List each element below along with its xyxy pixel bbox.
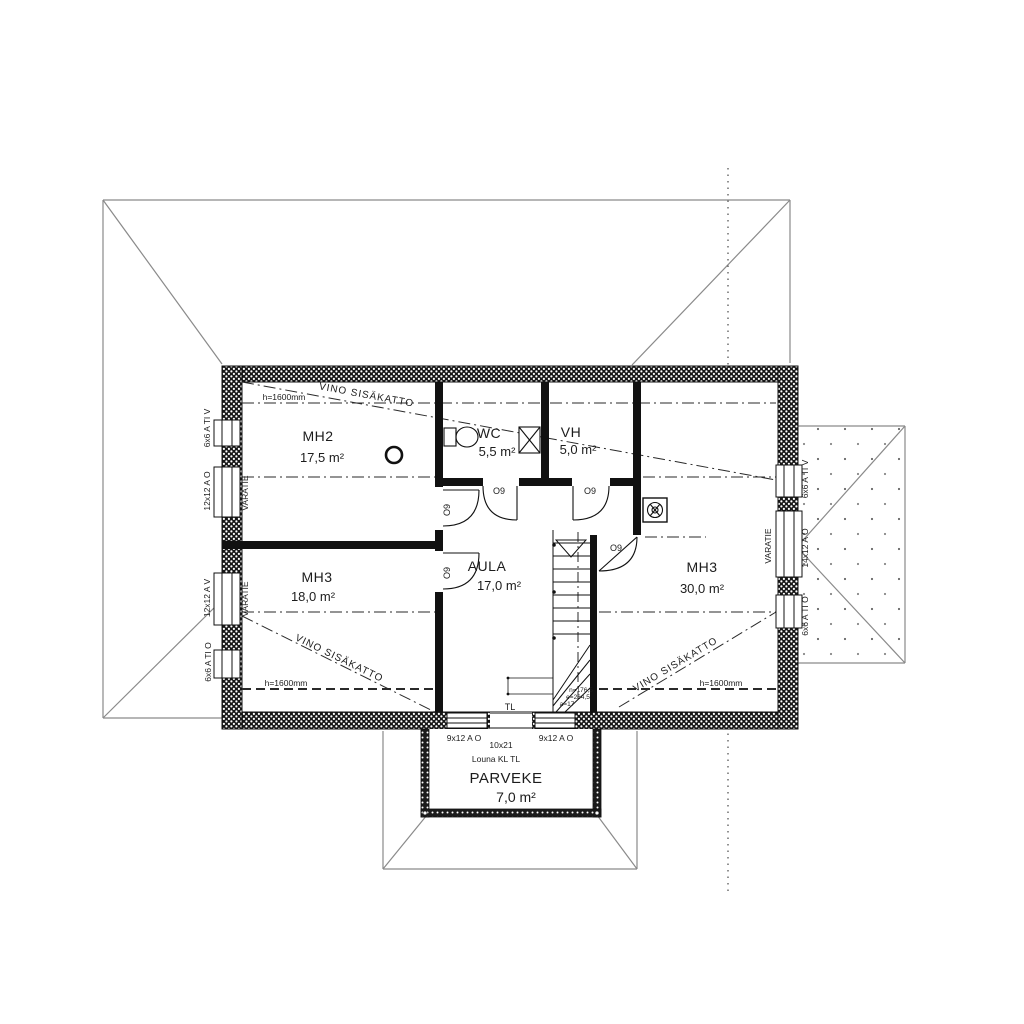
room-label-mh3-right: MH3	[686, 559, 717, 575]
balcony-rail-right	[593, 729, 601, 817]
height-label-top: h=1600mm	[263, 392, 306, 402]
terrace-dots	[798, 426, 905, 663]
porch-hip-right	[597, 815, 637, 869]
window-left-3	[214, 573, 240, 625]
room-area-mh3-right: 30,0 m²	[680, 581, 725, 596]
room-label-wc: WC	[477, 425, 501, 441]
hatch-label-tl: TL	[505, 702, 516, 712]
escape-label-left-1: VARATIE	[240, 475, 250, 510]
room-label-aula: AULA	[468, 558, 507, 574]
window-mark-bottom-1: 9x12 A O	[447, 733, 482, 743]
stair-dim-2: e=264,5	[566, 694, 590, 701]
windows-right	[776, 465, 802, 628]
height-label-br: h=1600mm	[700, 678, 743, 688]
toilet	[444, 427, 478, 447]
flue	[643, 498, 667, 522]
roof-wing-right	[797, 426, 905, 663]
wall-mh2-mh3l	[222, 541, 443, 549]
window-mark-bottom-2: 9x12 A O	[539, 733, 574, 743]
room-area-parveke: 7,0 m²	[496, 789, 536, 805]
door-code-wc: O9	[493, 486, 505, 496]
window-left-4	[214, 650, 240, 678]
stair-dim-3: a=17	[560, 701, 575, 708]
balcony-door-model: Louna KL TL	[472, 754, 520, 764]
room-area-vh: 5,0 m²	[560, 442, 598, 457]
roof-hip-top-right	[632, 200, 790, 365]
window-right-2	[776, 511, 802, 577]
floor-plan-drawing: MH2 17,5 m² WC 5,5 m² VH 5,0 m² AULA 17,…	[0, 0, 1024, 1024]
window-left-1	[214, 420, 240, 446]
window-mark-left-2: 12x12 A O	[202, 471, 212, 511]
window-mark-right-2: 14x12 A O	[800, 528, 810, 568]
window-mark-left-3: 12x12 A V	[202, 579, 212, 618]
window-left-2	[214, 467, 240, 517]
window-mark-right-3: 6x6 A TI O	[800, 596, 810, 636]
door-code-mh3-right: O9	[610, 543, 622, 553]
height-label-bl: h=1600mm	[265, 678, 308, 688]
window-bottom-1	[447, 713, 487, 728]
wall-mh3l-aula	[435, 592, 443, 712]
wall-wc-vh	[541, 382, 549, 482]
balcony-rail-bottom	[421, 809, 601, 817]
window-mark-left-4: 6x6 A TI O	[203, 642, 213, 682]
wall-wc-aula-a	[435, 478, 483, 486]
window-right-1	[776, 465, 802, 497]
room-area-wc: 5,5 m²	[479, 444, 517, 459]
balcony-door-size: 10x21	[489, 740, 512, 750]
room-label-parveke: PARVEKE	[470, 770, 543, 787]
balcony-rail-left	[421, 729, 429, 817]
window-mark-right-1: 6x6 A TI V	[800, 459, 810, 498]
door-code-mh2: O9	[442, 504, 452, 516]
porch-hip-left	[383, 815, 427, 869]
stair-dim-1: n=176,5	[569, 687, 593, 694]
window-mark-left-1: 6x6 A TI V	[202, 408, 212, 447]
room-label-vh: VH	[561, 424, 581, 440]
window-bottom-2	[535, 713, 575, 728]
wall-top	[222, 366, 798, 382]
escape-label-right: VARATIE	[763, 528, 773, 563]
room-area-mh3-left: 18,0 m²	[291, 589, 336, 604]
roof-hip-top-left	[103, 200, 222, 364]
wall-wc-aula-b	[519, 478, 572, 486]
door-code-vh: O9	[584, 486, 596, 496]
window-right-3	[776, 595, 802, 628]
door-code-mh3-left: O9	[442, 567, 452, 579]
room-label-mh2: MH2	[302, 428, 333, 444]
room-area-mh2: 17,5 m²	[300, 450, 345, 465]
wall-mh2-aula-a	[435, 382, 443, 487]
room-label-mh3-left: MH3	[301, 569, 332, 585]
floor-plan-canvas: MH2 17,5 m² WC 5,5 m² VH 5,0 m² AULA 17,…	[0, 0, 1024, 1024]
room-area-aula: 17,0 m²	[477, 578, 522, 593]
escape-label-left-2: VARATIE	[240, 581, 250, 616]
wall-vh-mh3r	[633, 382, 641, 535]
wall-stair-mh3r	[590, 535, 597, 712]
sink	[519, 427, 540, 453]
